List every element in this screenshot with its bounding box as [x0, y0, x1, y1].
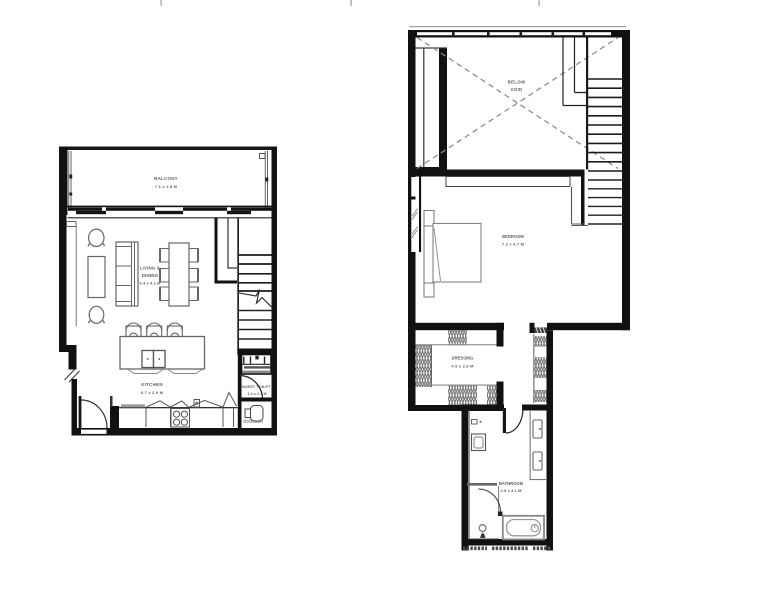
svg-text:BALCONY: BALCONY — [154, 176, 178, 181]
svg-text:BATHROOM: BATHROOM — [499, 481, 524, 486]
svg-text:LIVING &: LIVING & — [140, 266, 161, 271]
svg-text:7.1 x 1.8 M: 7.1 x 1.8 M — [155, 184, 178, 189]
svg-text:VOID: VOID — [511, 87, 523, 92]
svg-text:DRESSING: DRESSING — [452, 356, 474, 361]
svg-text:6.4 x 4.1 M: 6.4 x 4.1 M — [139, 281, 161, 286]
svg-text:6.7 x 2.9 M: 6.7 x 2.9 M — [141, 390, 164, 395]
svg-text:1.4 x 2.1 M: 1.4 x 2.1 M — [247, 392, 266, 396]
svg-text:GUEST TOILET: GUEST TOILET — [242, 385, 271, 389]
svg-text:BEDROOM: BEDROOM — [502, 234, 524, 239]
svg-text:DINING: DINING — [142, 273, 159, 278]
svg-text:4.9 x 2.6 M: 4.9 x 2.6 M — [451, 364, 474, 369]
svg-text:KITCHEN: KITCHEN — [141, 382, 163, 387]
svg-text:BELOW: BELOW — [508, 80, 526, 85]
svg-text:2.9 x 4.1 M: 2.9 x 4.1 M — [500, 488, 522, 493]
svg-text:7.2 x 4.7 M: 7.2 x 4.7 M — [502, 242, 525, 247]
